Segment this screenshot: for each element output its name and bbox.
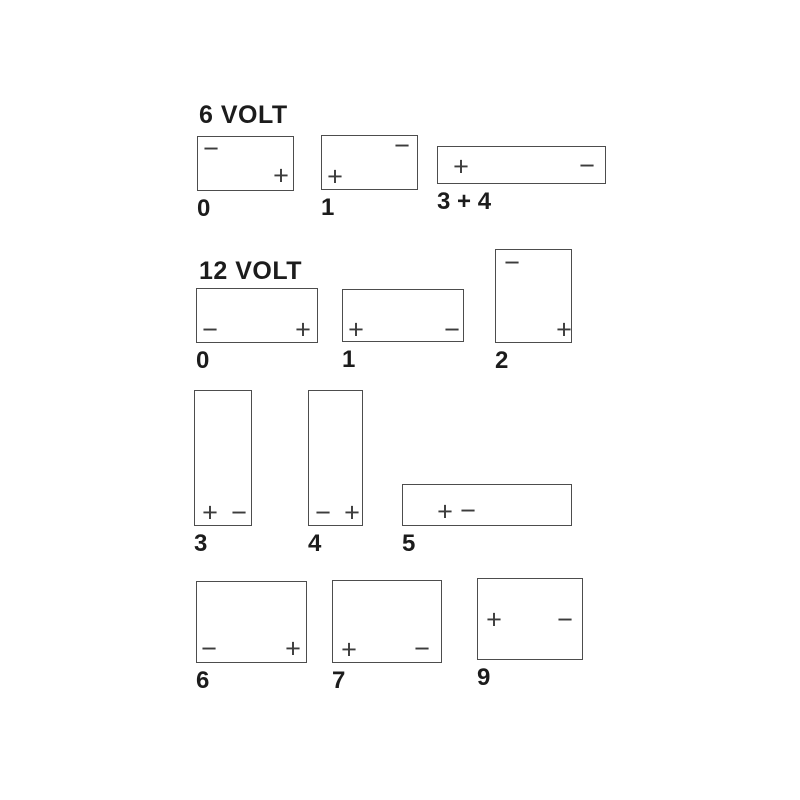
positive-terminal-icon: +	[486, 607, 502, 634]
battery-type-label-12-volt-5: 5	[402, 531, 415, 557]
negative-terminal-icon: −	[557, 607, 573, 634]
battery-type-label-6-volt-0: 0	[197, 196, 210, 222]
battery-type-label-12-volt-0: 0	[196, 348, 209, 374]
positive-terminal-icon: +	[453, 154, 469, 181]
battery-type-label-6-volt-1: 1	[321, 195, 334, 221]
battery-type-label-12-volt-9: 9	[477, 665, 490, 691]
positive-terminal-icon: +	[344, 500, 360, 527]
positive-terminal-icon: +	[295, 317, 311, 344]
battery-outline-12-volt-9: +−	[477, 578, 583, 660]
positive-terminal-icon: +	[273, 163, 289, 190]
battery-outline-12-volt-7: +−	[332, 580, 442, 663]
positive-terminal-icon: +	[348, 317, 364, 344]
negative-terminal-icon: −	[460, 498, 476, 525]
negative-terminal-icon: −	[579, 153, 595, 180]
section-heading-6-volt: 6 VOLT	[199, 103, 288, 128]
battery-type-label-12-volt-2: 2	[495, 348, 508, 374]
positive-terminal-icon: +	[327, 164, 343, 191]
negative-terminal-icon: −	[203, 136, 219, 163]
positive-terminal-icon: +	[341, 637, 357, 664]
battery-outline-6-volt-0: −+	[197, 136, 294, 191]
battery-type-label-6-volt-3+4: 3 + 4	[437, 189, 491, 215]
positive-terminal-icon: +	[556, 317, 572, 344]
positive-terminal-icon: +	[437, 499, 453, 526]
negative-terminal-icon: −	[315, 500, 331, 527]
battery-type-label-12-volt-3: 3	[194, 531, 207, 557]
battery-outline-12-volt-3: +−	[194, 390, 252, 526]
battery-outline-6-volt-1: −+	[321, 135, 418, 190]
battery-outline-12-volt-2: −+	[495, 249, 572, 343]
positive-terminal-icon: +	[202, 500, 218, 527]
negative-terminal-icon: −	[394, 133, 410, 160]
section-heading-12-volt: 12 VOLT	[199, 259, 302, 284]
battery-outline-12-volt-4: −+	[308, 390, 363, 526]
negative-terminal-icon: −	[201, 636, 217, 663]
battery-type-label-12-volt-7: 7	[332, 668, 345, 694]
battery-type-label-12-volt-6: 6	[196, 668, 209, 694]
battery-outline-12-volt-6: −+	[196, 581, 307, 663]
negative-terminal-icon: −	[414, 636, 430, 663]
battery-type-label-12-volt-4: 4	[308, 531, 321, 557]
battery-outline-12-volt-5: +−	[402, 484, 572, 526]
negative-terminal-icon: −	[231, 500, 247, 527]
battery-terminal-layout-diagram: 6 VOLT−+0−+1+−3 + 412 VOLT−+0+−1−+2+−3−+…	[0, 0, 800, 800]
negative-terminal-icon: −	[202, 317, 218, 344]
positive-terminal-icon: +	[285, 636, 301, 663]
battery-outline-12-volt-0: −+	[196, 288, 318, 343]
negative-terminal-icon: −	[444, 317, 460, 344]
negative-terminal-icon: −	[504, 250, 520, 277]
battery-outline-12-volt-1: +−	[342, 289, 464, 342]
battery-type-label-12-volt-1: 1	[342, 347, 355, 373]
battery-outline-6-volt-3+4: +−	[437, 146, 606, 184]
